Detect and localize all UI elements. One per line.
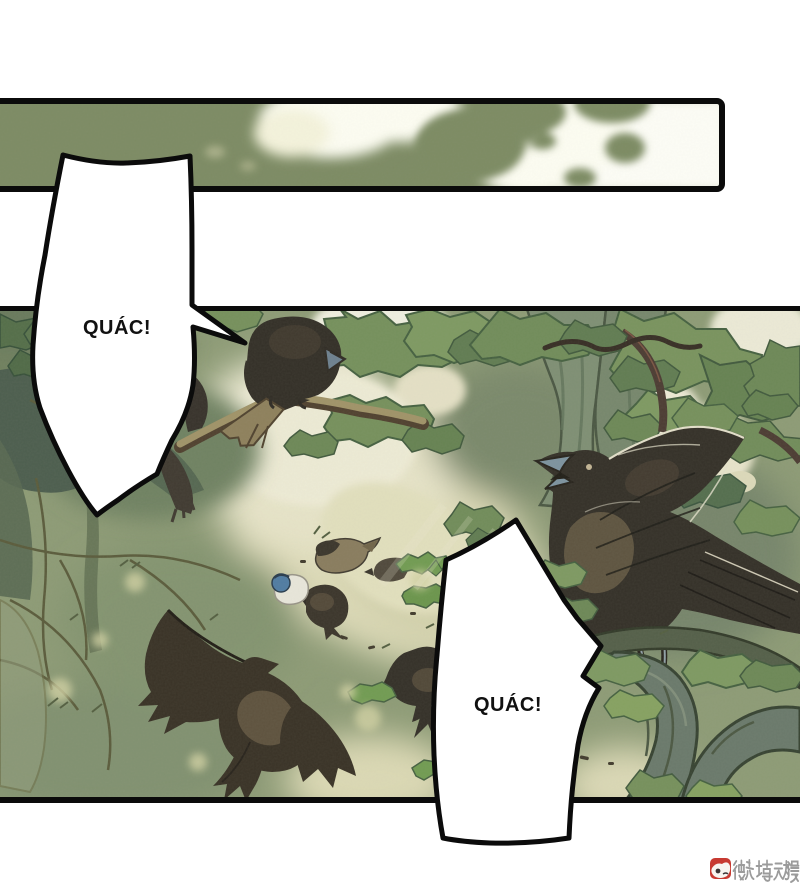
svg-text:QUÁC!: QUÁC! (474, 693, 542, 716)
svg-text:QUÁC!: QUÁC! (83, 316, 151, 339)
